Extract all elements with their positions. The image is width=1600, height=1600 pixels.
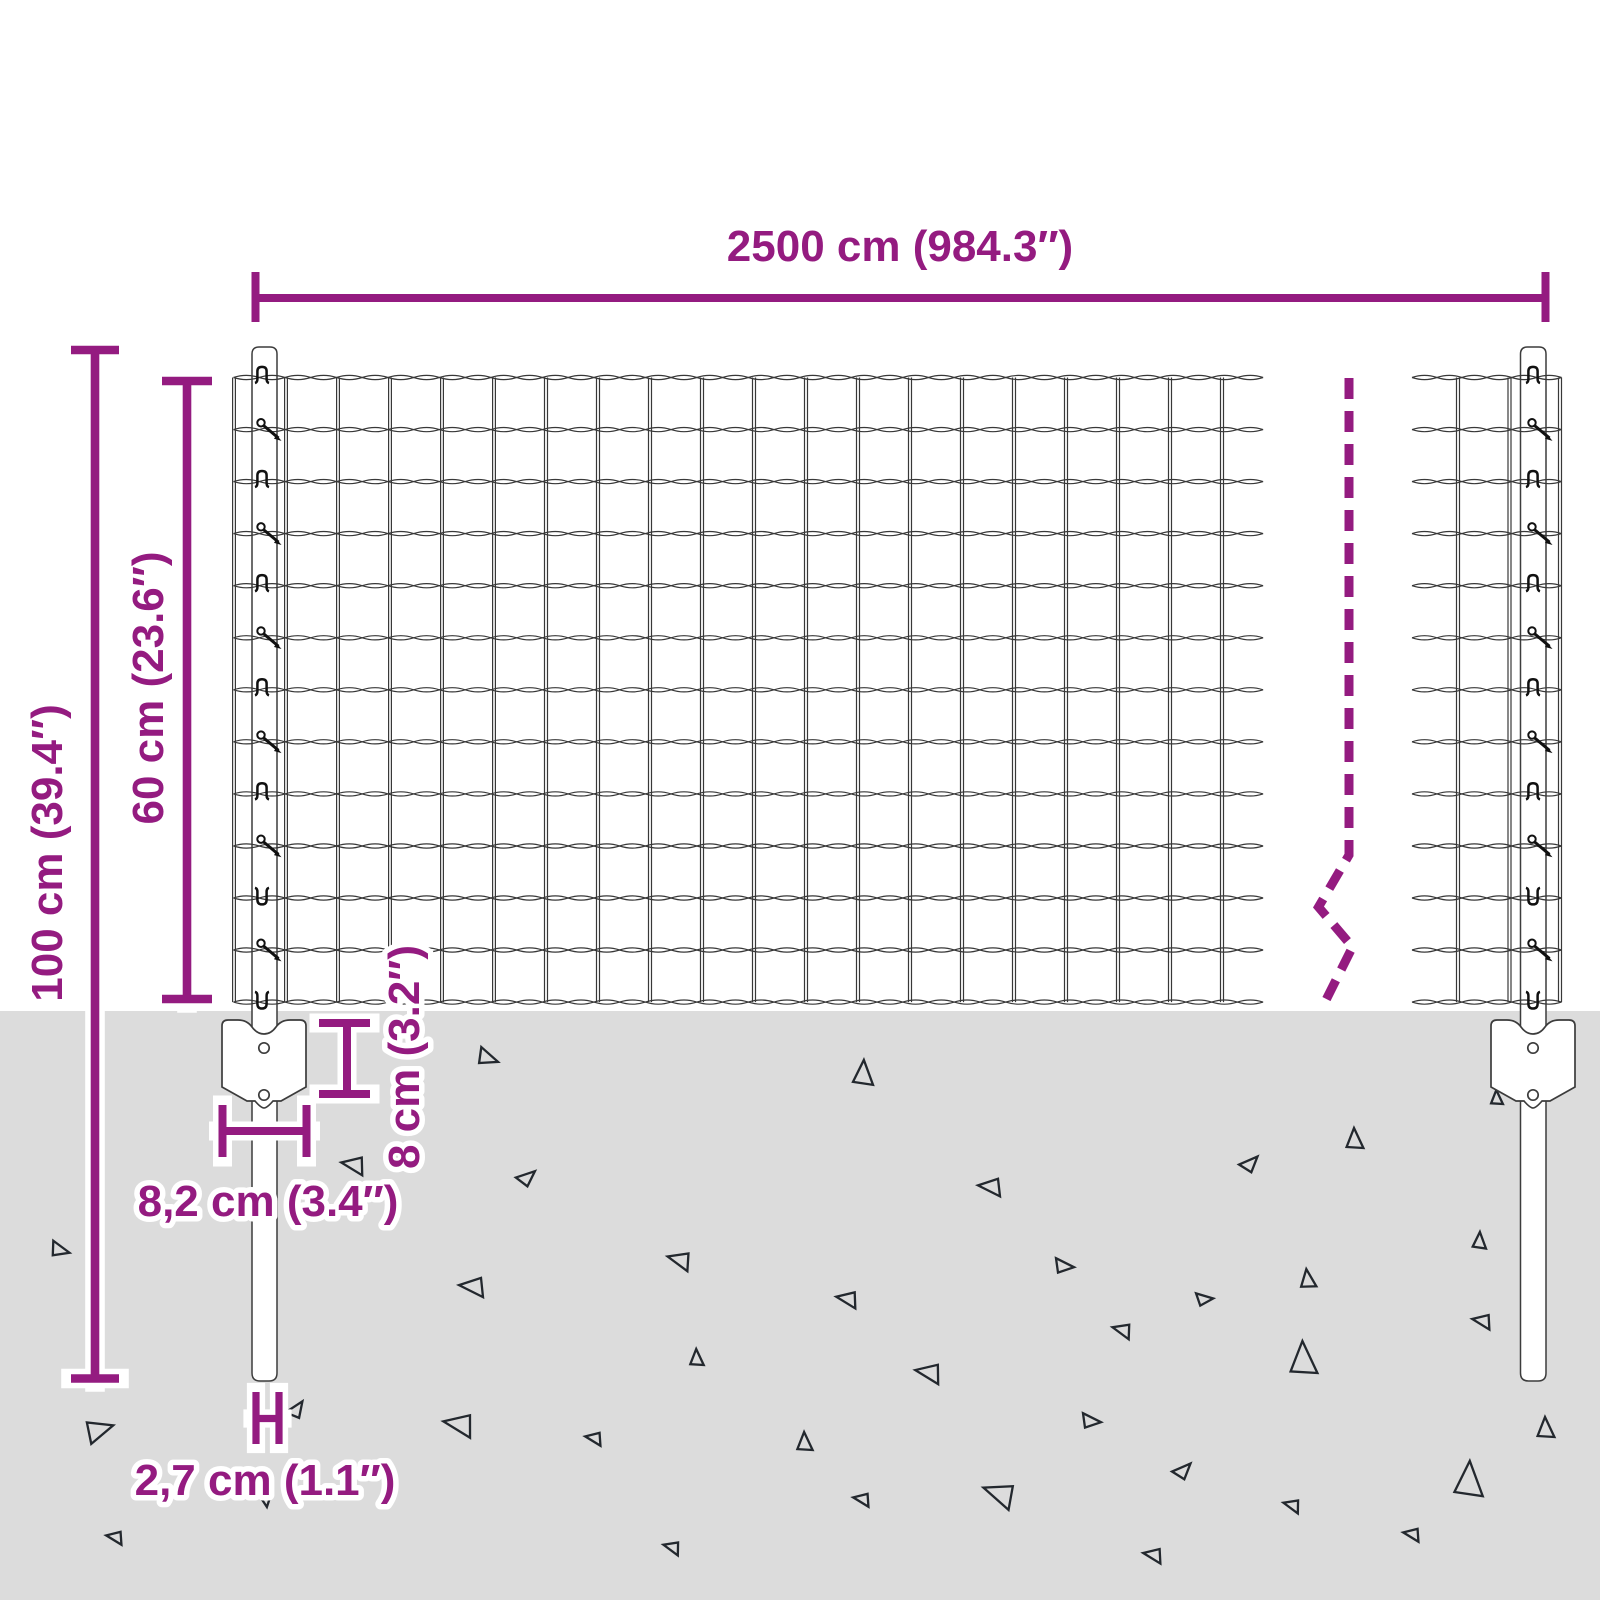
svg-text:8,2 cm (3.4″): 8,2 cm (3.4″) (138, 1177, 399, 1226)
svg-text:2500 cm (984.3″): 2500 cm (984.3″) (727, 222, 1073, 271)
svg-text:60 cm (23.6″): 60 cm (23.6″) (124, 551, 173, 824)
svg-text:8 cm (3.2″): 8 cm (3.2″) (380, 945, 429, 1169)
svg-text:2,7 cm (1.1″): 2,7 cm (1.1″) (135, 1456, 396, 1505)
svg-text:100 cm (39.4″): 100 cm (39.4″) (23, 704, 72, 1001)
